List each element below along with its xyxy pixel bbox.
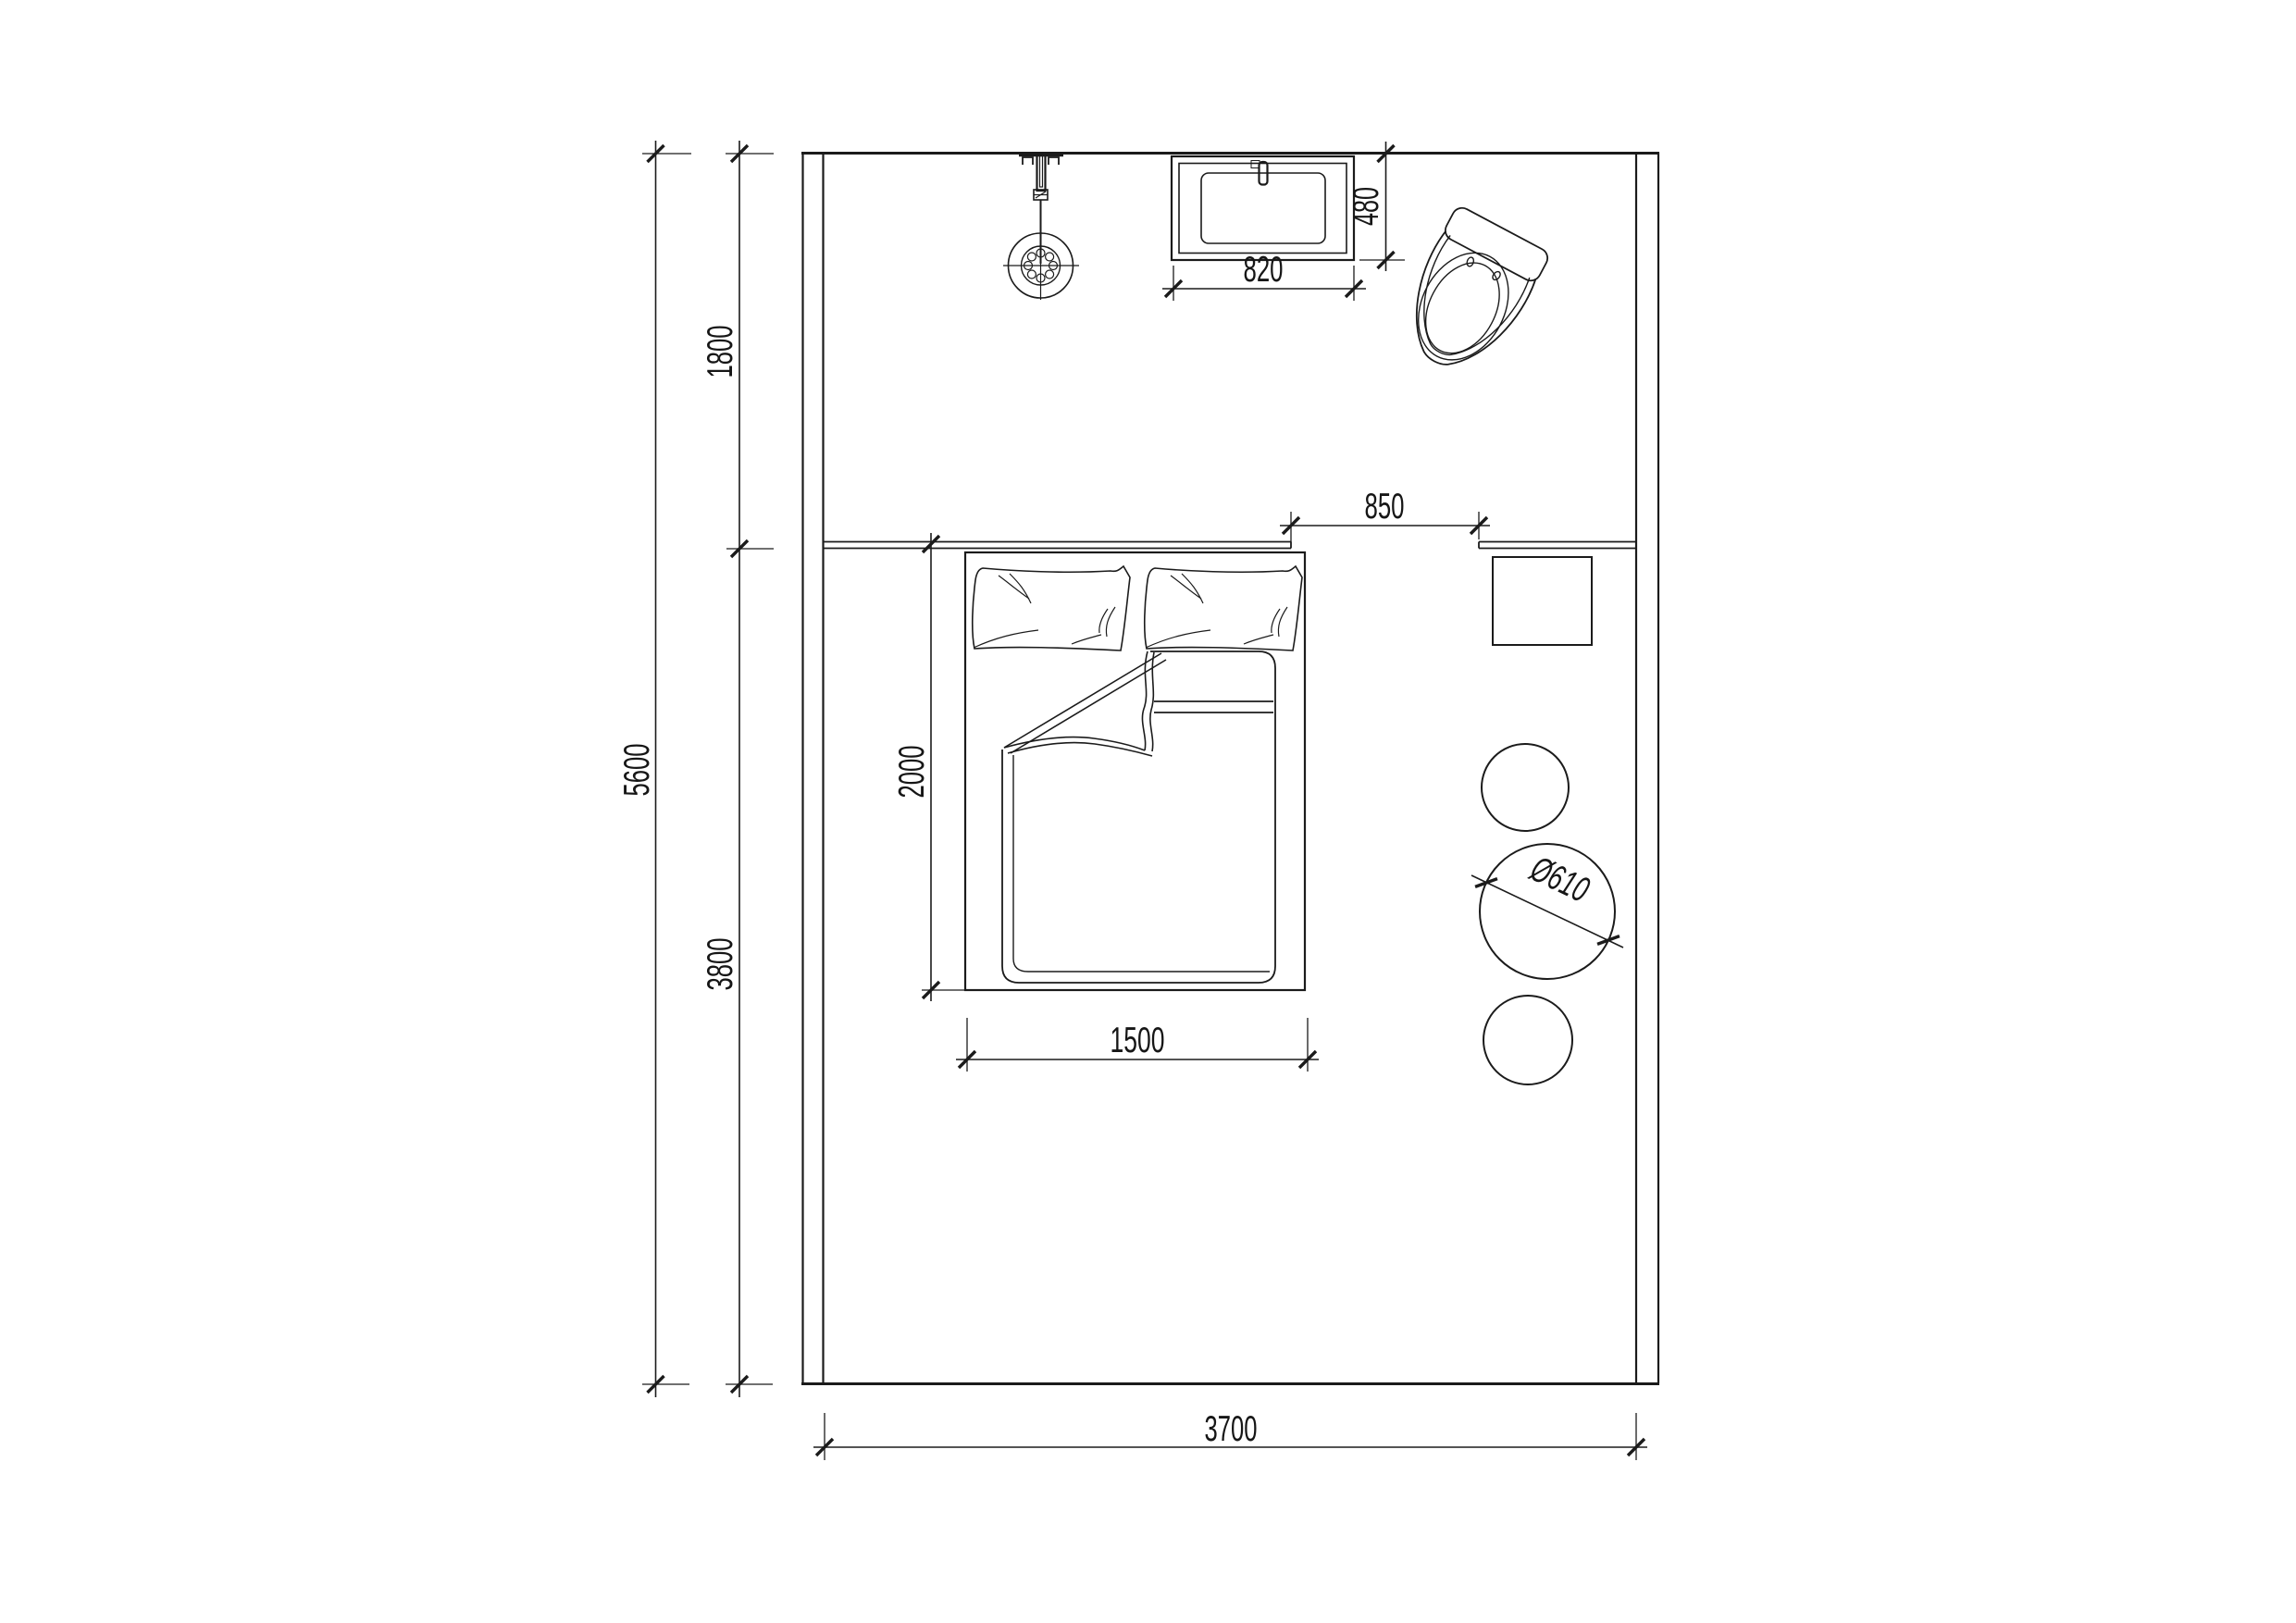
duvet-folded-corner xyxy=(1004,651,1166,756)
vanity-inner xyxy=(1179,164,1347,254)
floor-plan-canvas: 5600 1800 3800 3700 820 480 xyxy=(0,0,2296,1623)
toilet-seat-outer xyxy=(1400,237,1526,376)
drawing-sheet: 5600 1800 3800 3700 820 480 xyxy=(0,0,2296,1623)
stool-bottom xyxy=(1483,996,1572,1084)
dim-room-depth-5600: 5600 xyxy=(617,141,691,1397)
dim-label-3700: 3700 xyxy=(1205,1409,1258,1449)
toilet-body-inner xyxy=(1398,235,1531,374)
dim-room-width-3700: 3700 xyxy=(813,1409,1647,1460)
shower-bracket-left xyxy=(1023,157,1033,165)
dim-label-1500: 1500 xyxy=(1111,1021,1165,1060)
shower-head-fixture xyxy=(1003,155,1079,301)
dim-label-1800: 1800 xyxy=(701,326,740,378)
washbasin-vanity xyxy=(1172,156,1354,260)
dim-label-610: Ø610 xyxy=(1523,849,1595,911)
dim-vanity-width-820: 820 xyxy=(1162,250,1366,301)
shower-arm xyxy=(1037,155,1046,191)
bed-frame xyxy=(965,552,1305,990)
pillow-right xyxy=(1145,566,1302,650)
dim-label-850: 850 xyxy=(1365,487,1405,527)
shower-arm-inner xyxy=(1040,155,1043,187)
dim-label-480: 480 xyxy=(1347,187,1386,226)
dim-bed-length-2000: 2000 xyxy=(892,533,966,1001)
dim-opening-850: 850 xyxy=(1280,487,1490,542)
dim-label-820: 820 xyxy=(1244,250,1284,290)
dim-bed-width-1500: 1500 xyxy=(956,1018,1319,1072)
double-bed xyxy=(965,552,1305,990)
toilet xyxy=(1387,204,1551,386)
duvet xyxy=(1002,651,1275,983)
stool-top xyxy=(1482,744,1569,831)
shower-bracket-right xyxy=(1049,157,1059,165)
dim-stool-diameter-610: Ø610 xyxy=(1471,849,1623,951)
dim-label-3800: 3800 xyxy=(701,938,740,991)
dim-label-2000: 2000 xyxy=(892,746,932,799)
toilet-hinge-left xyxy=(1466,256,1475,267)
pillow-left xyxy=(973,566,1130,650)
bedside-table xyxy=(1493,557,1592,645)
dim-zones-1800-3800: 1800 3800 xyxy=(701,141,774,1397)
vanity-counter xyxy=(1172,156,1354,260)
duvet-inner-line xyxy=(1013,755,1270,972)
dim-label-5600: 5600 xyxy=(617,744,657,797)
dim-vanity-depth-480: 480 xyxy=(1347,142,1405,271)
headboard-ledge xyxy=(824,542,1636,549)
